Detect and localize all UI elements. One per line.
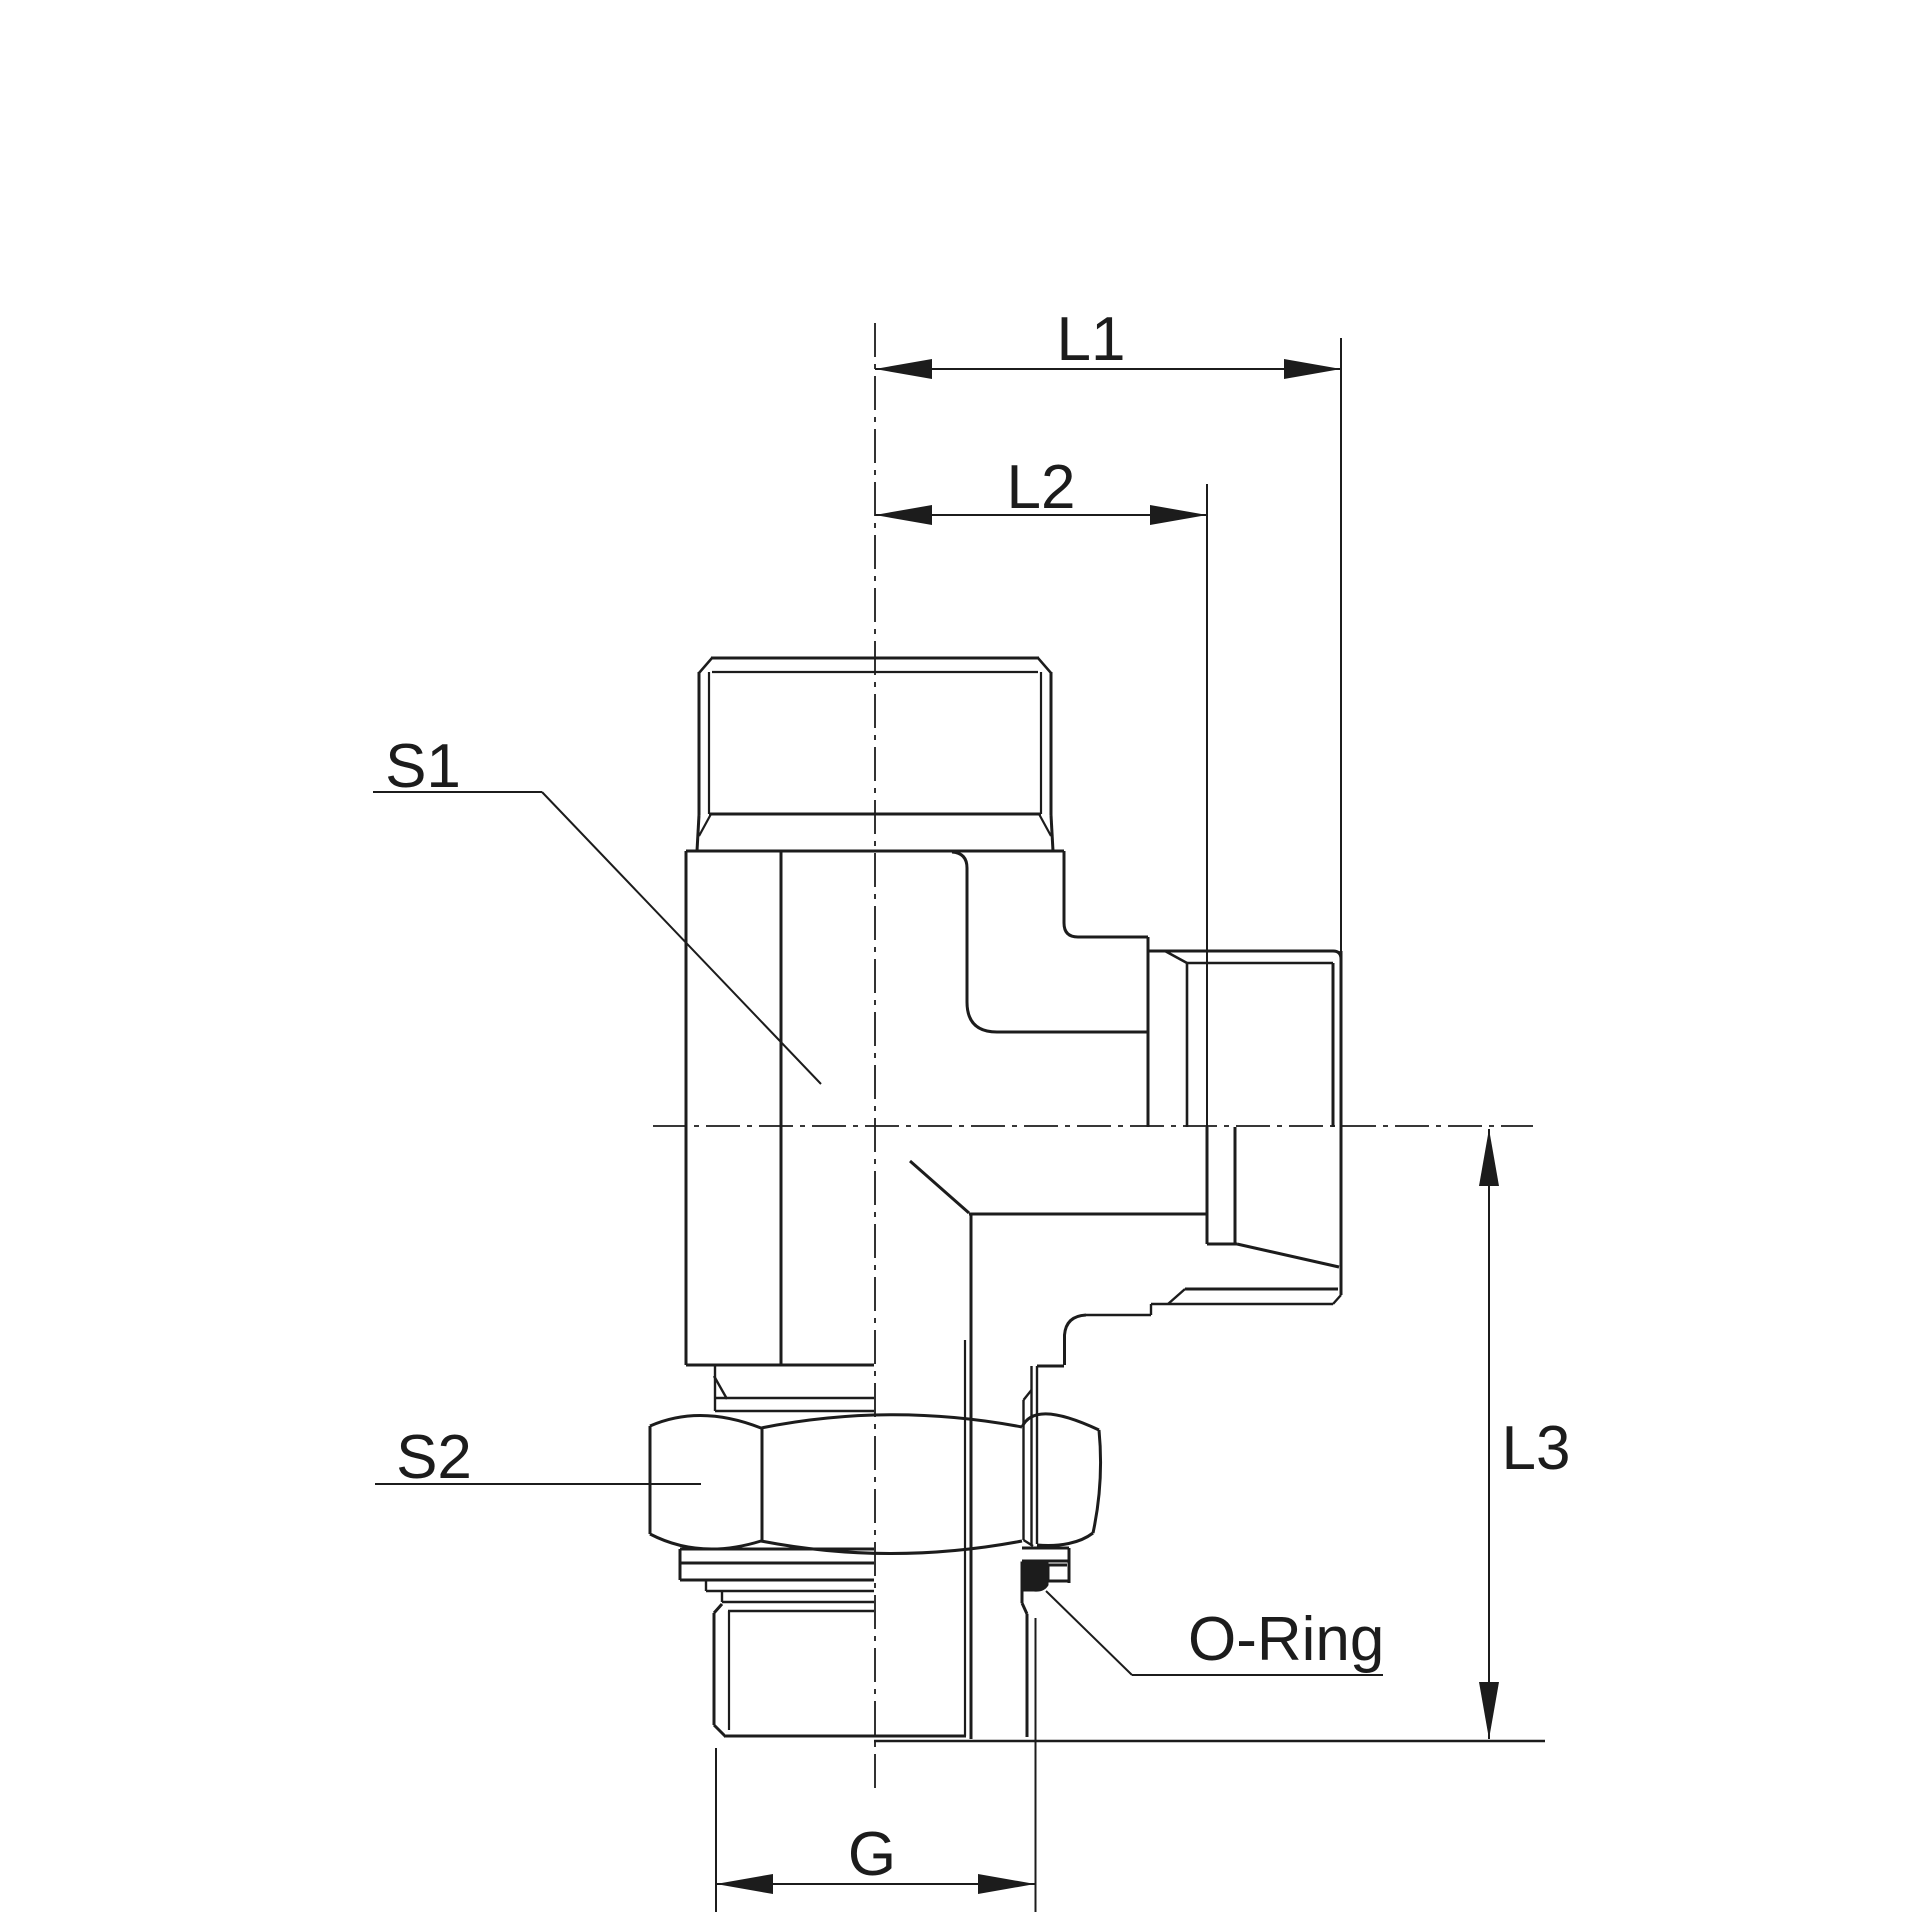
svg-text:L1: L1 — [1057, 305, 1126, 374]
svg-text:S1: S1 — [385, 732, 461, 801]
svg-text:G: G — [848, 1820, 896, 1889]
svg-text:L2: L2 — [1007, 453, 1076, 522]
svg-text:L3: L3 — [1502, 1414, 1571, 1483]
svg-text:O-Ring: O-Ring — [1188, 1605, 1384, 1674]
svg-text:S2: S2 — [396, 1423, 472, 1492]
